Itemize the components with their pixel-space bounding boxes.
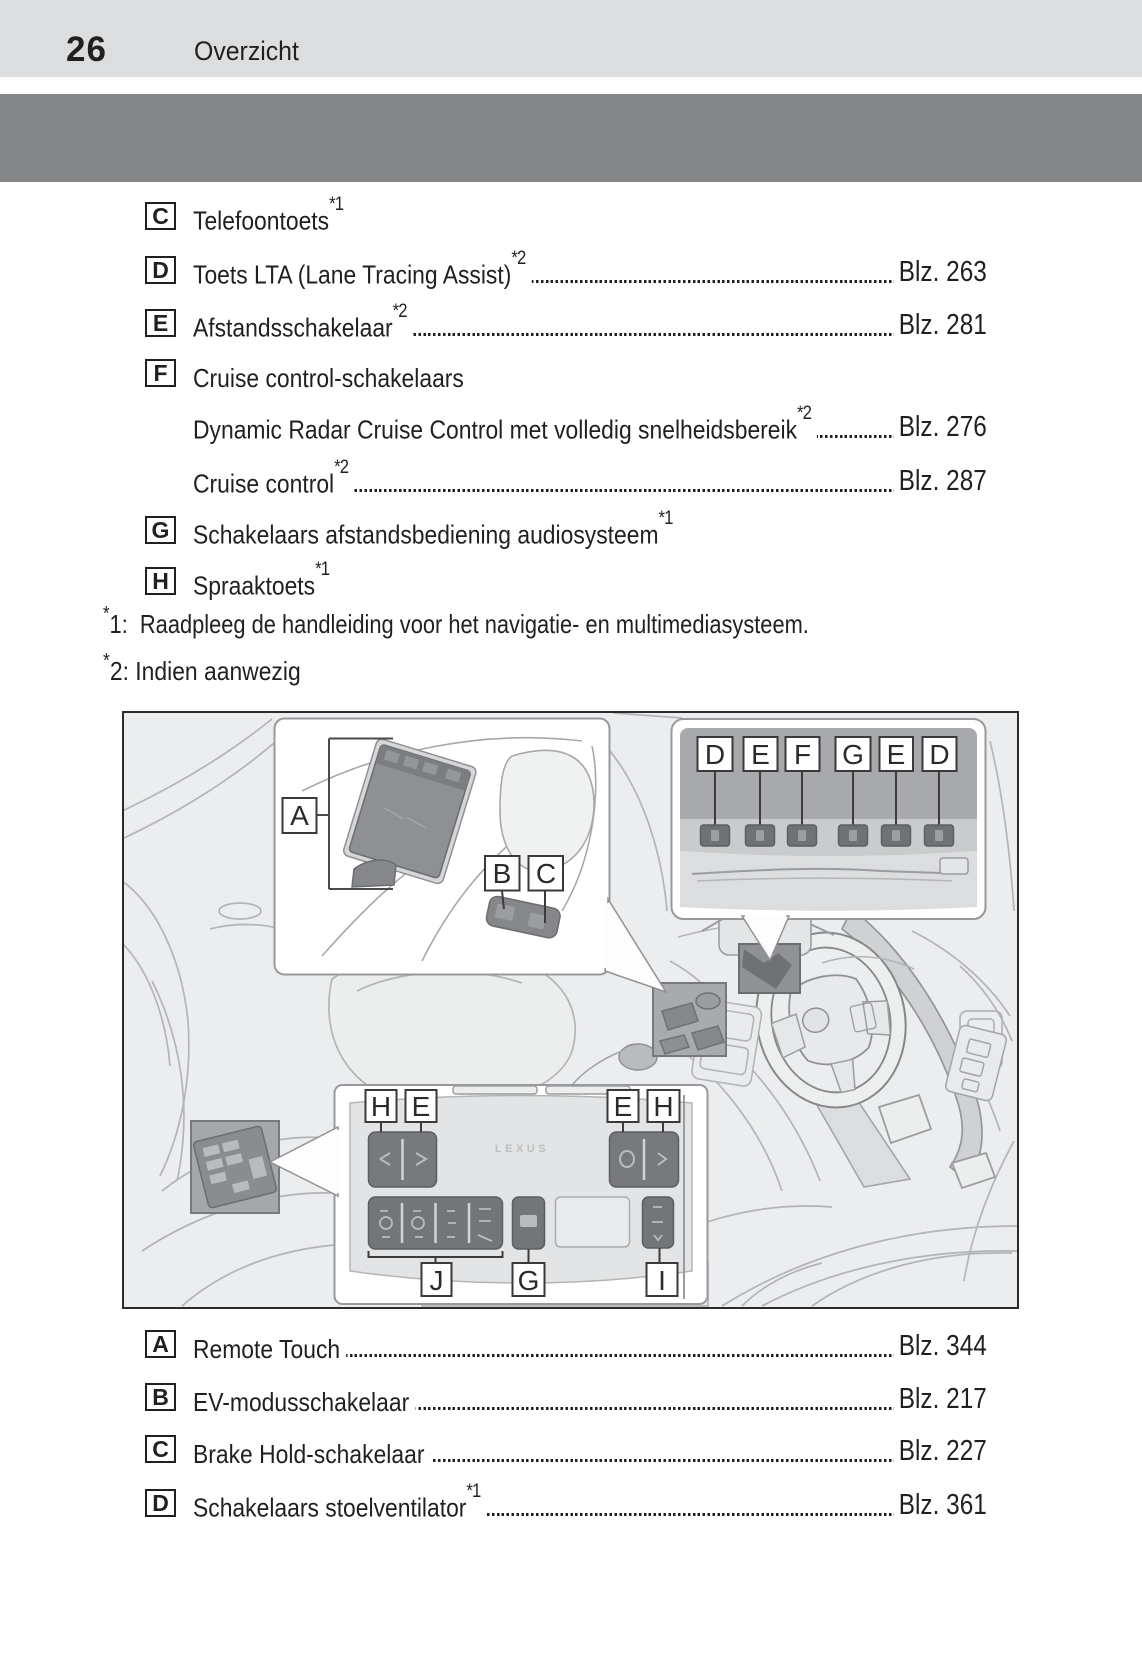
svg-text:LEXUS: LEXUS [495, 1143, 549, 1155]
svg-text:H: H [371, 1091, 391, 1122]
svg-text:G: G [842, 739, 864, 770]
svg-text:E: E [614, 1091, 633, 1122]
svg-text:C: C [536, 858, 556, 889]
svg-text:G: G [518, 1265, 540, 1296]
svg-text:D: D [929, 739, 949, 770]
svg-text:I: I [658, 1265, 666, 1296]
svg-text:F: F [794, 739, 811, 770]
svg-text:H: H [653, 1091, 673, 1122]
svg-text:E: E [887, 739, 906, 770]
svg-text:E: E [751, 739, 770, 770]
svg-text:A: A [290, 800, 309, 831]
svg-text:D: D [705, 739, 725, 770]
svg-text:E: E [412, 1091, 431, 1122]
svg-text:B: B [493, 858, 512, 889]
svg-text:J: J [430, 1265, 444, 1296]
